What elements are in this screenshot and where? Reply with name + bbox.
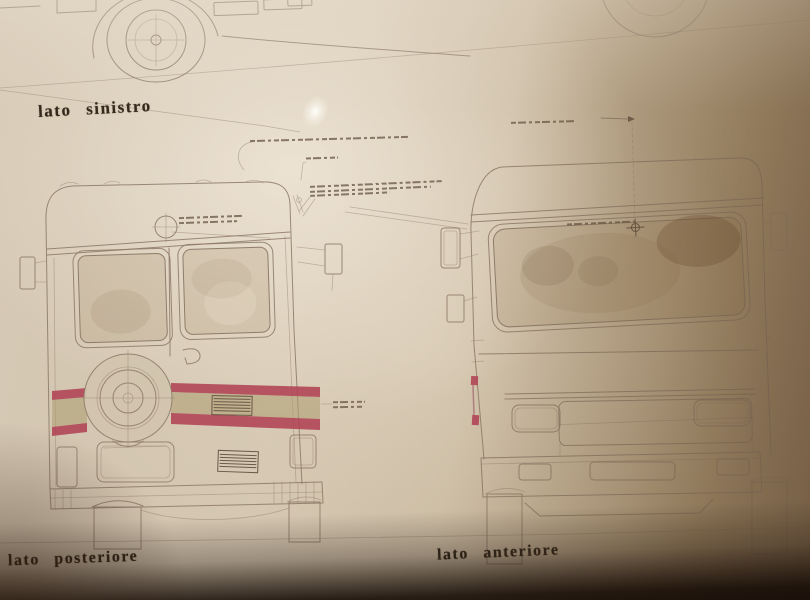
rear-view-drawing bbox=[20, 180, 342, 549]
front-view-drawing bbox=[441, 116, 789, 564]
door-handle bbox=[183, 349, 200, 364]
right-headlight bbox=[694, 400, 750, 426]
rear-hatch bbox=[97, 442, 174, 482]
roof-fixture-symbol bbox=[152, 213, 180, 242]
stripe-reference-marks bbox=[471, 376, 480, 425]
top-partial-side-view bbox=[0, 0, 710, 82]
spare-wheel-cover bbox=[82, 350, 175, 448]
rear-windows bbox=[73, 242, 276, 348]
note-stripe bbox=[333, 401, 365, 411]
left-tail-lamp bbox=[57, 447, 77, 487]
lower-vent-grille bbox=[218, 450, 259, 472]
top-right-partial-wheel bbox=[600, 0, 710, 37]
front-grille-panel bbox=[559, 398, 753, 445]
rear-bumper bbox=[50, 482, 323, 509]
rear-right-mirror bbox=[297, 244, 342, 291]
windshield bbox=[488, 211, 751, 332]
framed-blueprint-photo: lato sinistro lato posteriore lato anter… bbox=[0, 0, 810, 600]
front-right-mirror bbox=[764, 213, 787, 250]
left-headlight bbox=[512, 405, 560, 432]
rear-left-mirror bbox=[20, 257, 46, 289]
hood-seam bbox=[505, 389, 755, 399]
